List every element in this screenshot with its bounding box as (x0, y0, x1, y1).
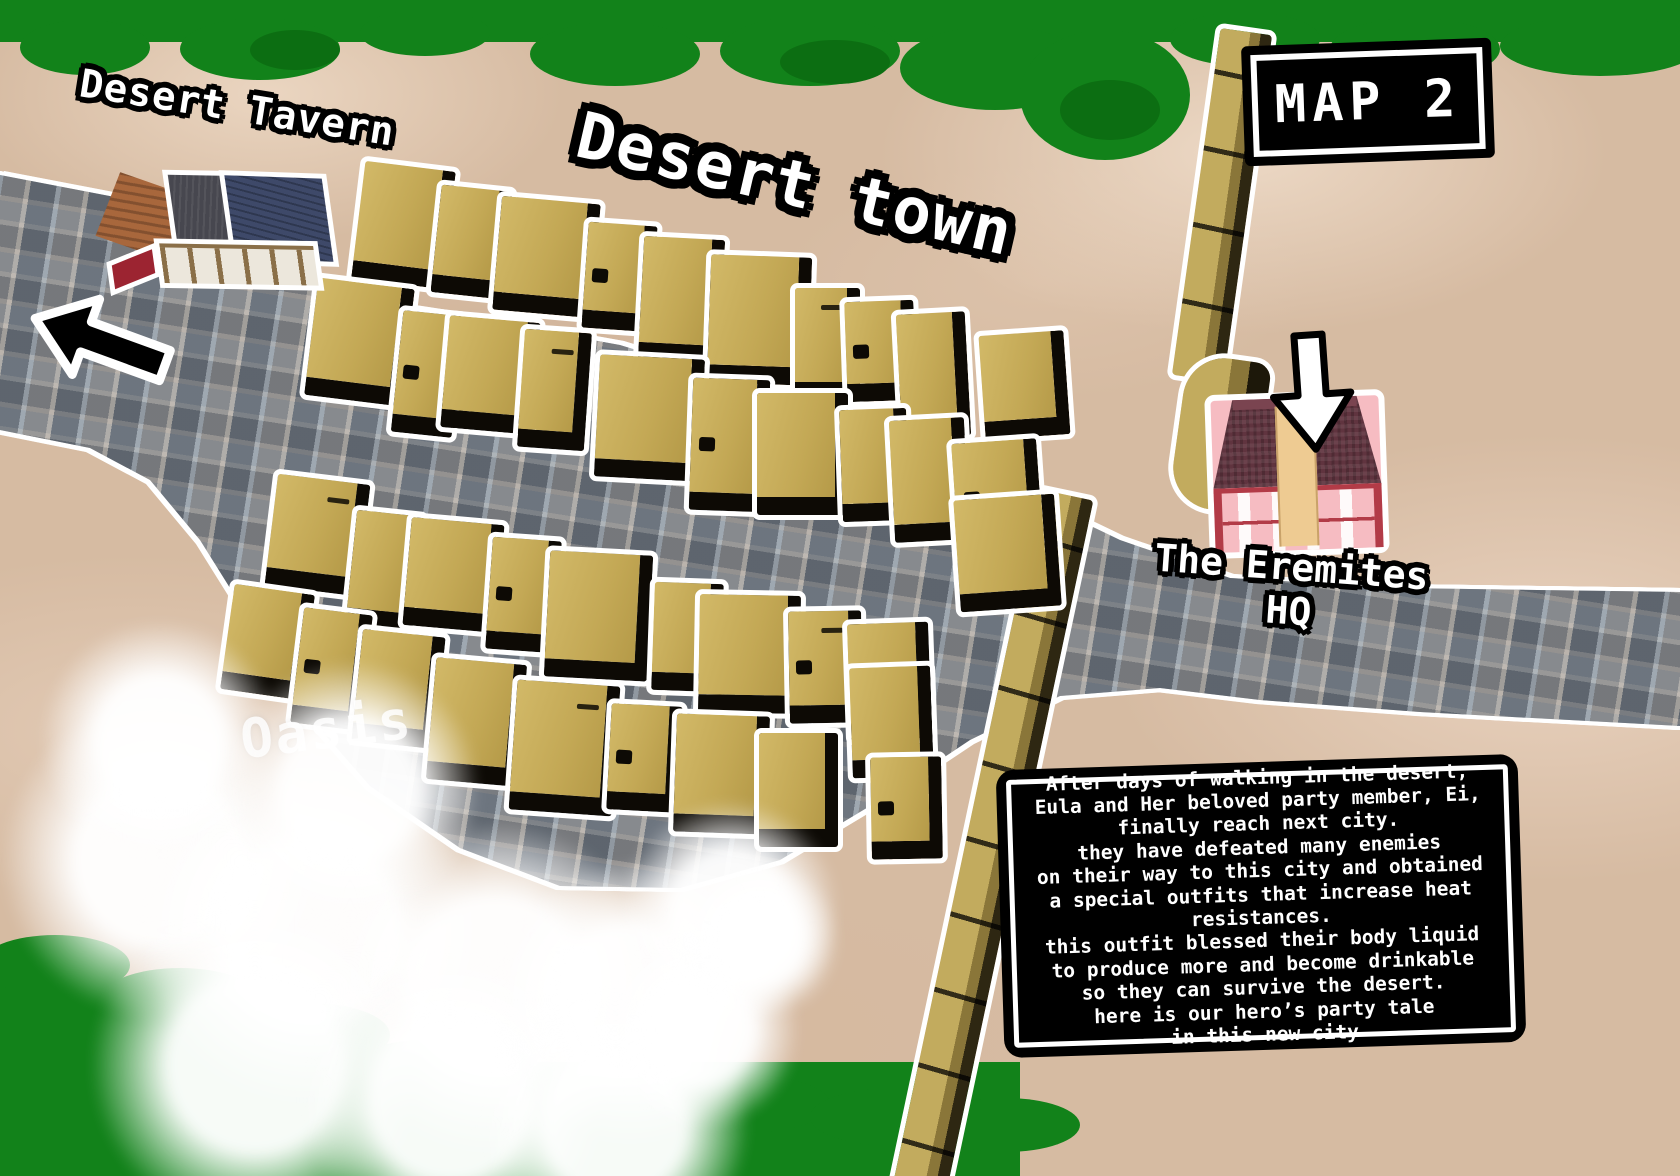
map-number-badge: MAP 2 (1241, 38, 1495, 167)
fog-cloud (680, 860, 840, 1020)
town-building (757, 393, 848, 515)
town-building (953, 494, 1062, 613)
story-box: After days of walking in the desert, Eul… (996, 754, 1527, 1058)
town-building (606, 703, 682, 813)
town-building (978, 330, 1070, 440)
map-number-text: MAP 2 (1274, 69, 1463, 135)
town-building (544, 550, 653, 681)
tavern-red-awning (112, 249, 155, 289)
town-building (517, 329, 592, 451)
town-building (698, 594, 801, 714)
town-building (594, 354, 705, 481)
fog-cloud (220, 660, 480, 920)
story-text: After days of walking in the desert, Eul… (1034, 759, 1489, 1054)
hq-pointer-arrow-icon (1264, 325, 1361, 461)
town-building (509, 680, 621, 817)
story-box-frame: After days of walking in the desert, Eul… (1006, 764, 1516, 1048)
tavern-timber-wall (159, 243, 318, 285)
map-canvas: Oasis Desert Tavern Desert town The Erem… (0, 0, 1680, 1176)
town-building (870, 756, 943, 859)
map-number-badge-frame: MAP 2 (1250, 47, 1485, 157)
